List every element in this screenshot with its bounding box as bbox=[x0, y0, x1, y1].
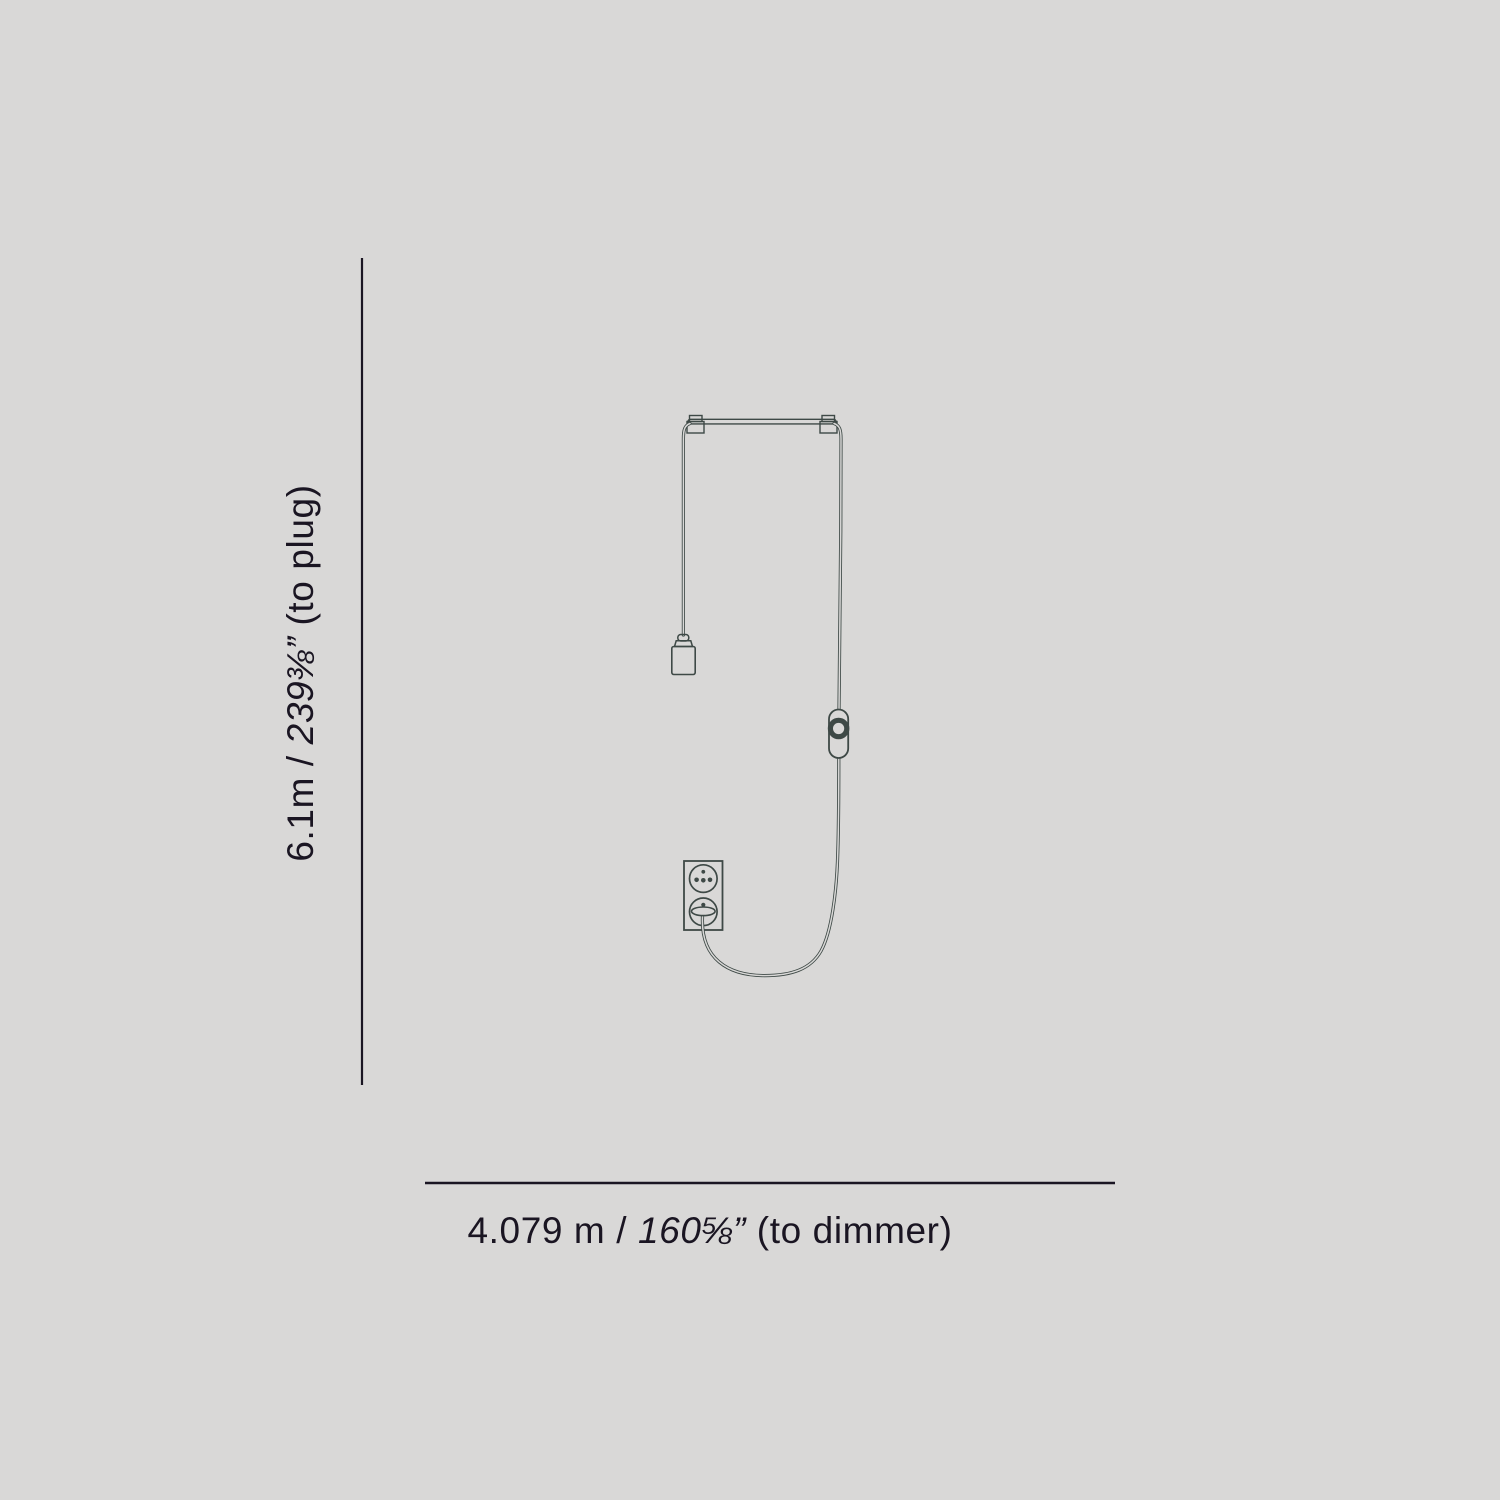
dimmer-switch bbox=[829, 710, 848, 759]
outlet-hole-right bbox=[708, 878, 713, 883]
bar-right-tab bbox=[822, 416, 835, 422]
horizontal-separator: / bbox=[605, 1210, 638, 1251]
wall-light-drawing bbox=[672, 416, 848, 976]
power-plug bbox=[692, 903, 716, 916]
plug-earth-pin bbox=[701, 903, 705, 907]
outlet-hole-center bbox=[701, 878, 706, 883]
product-dimension-drawing bbox=[0, 0, 1500, 1500]
lamp-socket bbox=[672, 635, 695, 675]
cord-to-socket bbox=[683, 424, 690, 636]
vertical-imperial-value: 239⅜” bbox=[280, 636, 321, 744]
vertical-dimension-label: 6.1m / 239⅜” (to plug) bbox=[279, 484, 323, 861]
plug-body bbox=[692, 907, 716, 916]
diagram-canvas: 6.1m / 239⅜” (to plug) 4.079 m / 160⅝” (… bbox=[0, 0, 1500, 1500]
horizontal-suffix: (to dimmer) bbox=[746, 1210, 953, 1251]
outlet-hole-left bbox=[694, 878, 699, 883]
horizontal-imperial-value: 160⅝” bbox=[638, 1210, 746, 1251]
cord-to-dimmer bbox=[834, 424, 841, 711]
pendant-bar bbox=[687, 416, 837, 434]
horizontal-metric-value: 4.079 m bbox=[467, 1210, 605, 1251]
dimension-lines bbox=[362, 258, 1115, 1183]
vertical-metric-value: 6.1m bbox=[280, 777, 321, 862]
bar-left-tab bbox=[690, 416, 703, 422]
vertical-separator: / bbox=[280, 744, 321, 777]
outlet-earth-pin-hole bbox=[701, 870, 705, 874]
bar-tube bbox=[688, 419, 836, 424]
horizontal-dimension-label: 4.079 m / 160⅝” (to dimmer) bbox=[467, 1209, 952, 1253]
vertical-suffix: (to plug) bbox=[280, 484, 321, 636]
socket-body bbox=[672, 647, 695, 675]
